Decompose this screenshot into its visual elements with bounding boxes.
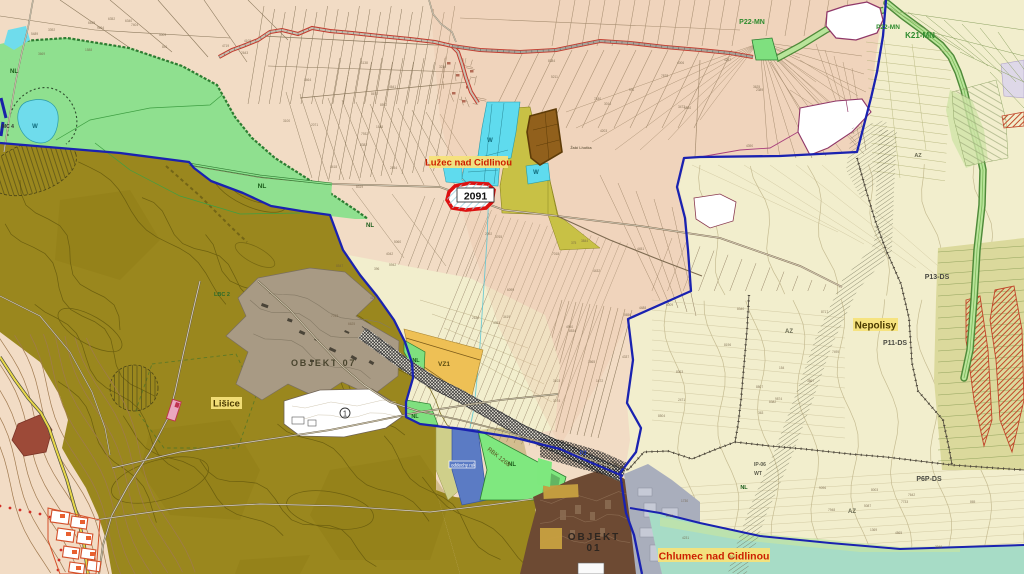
svg-text:W: W xyxy=(32,124,38,130)
svg-text:8592: 8592 xyxy=(380,103,387,107)
svg-text:1588: 1588 xyxy=(85,48,92,52)
svg-text:865: 865 xyxy=(970,500,976,504)
svg-text:3844: 3844 xyxy=(581,239,588,243)
svg-text:NL: NL xyxy=(258,183,267,190)
svg-text:7180: 7180 xyxy=(594,97,601,101)
svg-text:NL: NL xyxy=(10,69,18,75)
svg-text:841: 841 xyxy=(162,45,168,49)
svg-text:2091: 2091 xyxy=(464,191,488,203)
svg-text:154: 154 xyxy=(779,366,785,370)
svg-text:4203: 4203 xyxy=(600,129,607,133)
svg-text:991: 991 xyxy=(629,88,635,92)
svg-text:8003: 8003 xyxy=(871,488,878,492)
svg-text:6645: 6645 xyxy=(88,21,95,25)
svg-text:1838: 1838 xyxy=(376,125,383,129)
svg-text:4451: 4451 xyxy=(637,247,644,251)
svg-text:2630: 2630 xyxy=(472,316,479,320)
svg-text:NL: NL xyxy=(411,414,419,420)
svg-text:9874: 9874 xyxy=(775,397,782,401)
svg-text:5942: 5942 xyxy=(389,263,396,267)
svg-text:8196: 8196 xyxy=(724,343,731,347)
svg-text:6009: 6009 xyxy=(666,303,673,307)
svg-text:1730: 1730 xyxy=(681,499,688,503)
svg-text:8534: 8534 xyxy=(569,329,576,333)
svg-text:3074: 3074 xyxy=(553,399,560,403)
svg-text:9096: 9096 xyxy=(819,486,826,490)
svg-text:W: W xyxy=(533,170,539,176)
svg-text:5489: 5489 xyxy=(31,32,38,36)
svg-text:Lužec nad Cidlinou: Lužec nad Cidlinou xyxy=(425,158,512,169)
svg-text:4042: 4042 xyxy=(386,252,393,256)
svg-text:7948: 7948 xyxy=(828,508,835,512)
svg-text:4105: 4105 xyxy=(244,39,251,43)
svg-text:WT: WT xyxy=(754,471,762,477)
svg-text:5009: 5009 xyxy=(159,33,166,37)
svg-text:4865: 4865 xyxy=(895,531,902,535)
svg-text:AZ: AZ xyxy=(914,153,922,159)
svg-text:Nepolisy: Nepolisy xyxy=(855,321,897,332)
svg-text:5656: 5656 xyxy=(624,313,631,317)
svg-text:4006: 4006 xyxy=(677,61,684,65)
svg-text:8504: 8504 xyxy=(658,414,665,418)
svg-text:6540: 6540 xyxy=(684,106,691,110)
svg-text:P13-DS: P13-DS xyxy=(925,274,950,281)
svg-text:7733: 7733 xyxy=(901,500,908,504)
svg-text:P11-DS: P11-DS xyxy=(883,340,907,347)
svg-text:4337: 4337 xyxy=(622,355,629,359)
svg-text:3419: 3419 xyxy=(503,315,510,319)
svg-text:1138: 1138 xyxy=(361,61,368,65)
svg-text:5060: 5060 xyxy=(394,240,401,244)
svg-text:LBC 2: LBC 2 xyxy=(214,292,230,298)
svg-text:Žabí Lhotka: Žabí Lhotka xyxy=(570,145,592,150)
svg-text:8672: 8672 xyxy=(371,92,378,96)
svg-text:K21-MN: K21-MN xyxy=(905,31,935,40)
svg-text:4287: 4287 xyxy=(724,58,731,62)
svg-text:3946: 3946 xyxy=(935,545,942,549)
svg-text:8319: 8319 xyxy=(356,185,363,189)
svg-text:7878: 7878 xyxy=(661,74,668,78)
svg-text:8400: 8400 xyxy=(666,514,673,518)
svg-text:NL: NL xyxy=(366,223,374,229)
svg-text:8418: 8418 xyxy=(330,165,337,169)
svg-text:W: W xyxy=(487,138,493,144)
svg-text:3392: 3392 xyxy=(48,28,55,32)
svg-text:2389: 2389 xyxy=(756,88,763,92)
svg-text:6625: 6625 xyxy=(348,322,355,326)
svg-text:4641: 4641 xyxy=(389,85,396,89)
svg-text:7642: 7642 xyxy=(908,493,915,497)
svg-text:4353: 4353 xyxy=(493,321,500,325)
svg-text:8384: 8384 xyxy=(548,59,555,63)
svg-text:3234: 3234 xyxy=(439,65,446,69)
svg-text:MC 4: MC 4 xyxy=(2,124,14,130)
svg-text:3765: 3765 xyxy=(495,235,502,239)
svg-text:375: 375 xyxy=(571,241,577,245)
svg-text:2554: 2554 xyxy=(390,166,397,170)
svg-text:7495: 7495 xyxy=(832,350,839,354)
svg-text:6352: 6352 xyxy=(108,17,115,21)
svg-text:NL: NL xyxy=(740,485,748,491)
svg-text:5211: 5211 xyxy=(551,75,558,79)
svg-text:4488: 4488 xyxy=(639,306,646,310)
svg-text:5087: 5087 xyxy=(864,504,871,508)
svg-text:P6P-DS: P6P-DS xyxy=(916,476,942,483)
svg-text:7848: 7848 xyxy=(728,555,735,559)
svg-text:8807: 8807 xyxy=(756,385,763,389)
svg-text:VZ1: VZ1 xyxy=(438,361,450,368)
svg-text:6099: 6099 xyxy=(507,288,514,292)
svg-text:8464: 8464 xyxy=(304,78,311,82)
svg-text:2092: 2092 xyxy=(485,232,492,236)
svg-text:1565: 1565 xyxy=(588,360,595,364)
svg-text:8363: 8363 xyxy=(676,370,683,374)
svg-text:7932: 7932 xyxy=(361,132,368,136)
svg-text:8340: 8340 xyxy=(737,307,744,311)
svg-text:7018: 7018 xyxy=(552,252,559,256)
svg-text:NL: NL xyxy=(412,358,420,364)
svg-text:1472: 1472 xyxy=(596,379,603,383)
svg-text:Chlumec nad Cidlinou: Chlumec nad Cidlinou xyxy=(659,551,770,563)
svg-text:4432: 4432 xyxy=(593,269,600,273)
svg-text:4231: 4231 xyxy=(682,536,689,540)
svg-text:2643: 2643 xyxy=(241,51,248,55)
svg-text:P22-MN: P22-MN xyxy=(739,19,765,26)
svg-text:01: 01 xyxy=(586,543,601,554)
svg-text:1: 1 xyxy=(343,410,348,419)
svg-text:7404: 7404 xyxy=(131,23,138,27)
svg-text:AZ: AZ xyxy=(848,509,856,515)
svg-text:OBJEKT 07: OBJEKT 07 xyxy=(291,358,356,368)
svg-text:Lišice: Lišice xyxy=(213,399,240,410)
svg-text:1369: 1369 xyxy=(870,528,877,532)
svg-text:396: 396 xyxy=(374,267,380,271)
svg-text:8547: 8547 xyxy=(336,264,343,268)
svg-text:3669: 3669 xyxy=(38,52,45,56)
svg-text:2071: 2071 xyxy=(311,123,318,127)
svg-text:oddechy ruk: oddechy ruk xyxy=(451,463,476,468)
svg-text:AZ: AZ xyxy=(785,329,793,335)
svg-text:3014: 3014 xyxy=(604,102,611,106)
svg-text:419: 419 xyxy=(370,296,376,300)
svg-text:OBJEKT: OBJEKT xyxy=(568,532,621,543)
svg-text:4390: 4390 xyxy=(746,144,753,148)
svg-text:8717: 8717 xyxy=(821,310,828,314)
svg-text:8382: 8382 xyxy=(769,400,776,404)
svg-text:7763: 7763 xyxy=(331,314,338,318)
svg-text:IP-06: IP-06 xyxy=(754,462,766,468)
svg-text:3103: 3103 xyxy=(553,379,560,383)
svg-text:2471: 2471 xyxy=(678,398,685,402)
svg-text:9694: 9694 xyxy=(97,26,104,30)
svg-text:4719: 4719 xyxy=(222,44,229,48)
svg-text:363: 363 xyxy=(758,411,764,415)
svg-text:8382: 8382 xyxy=(360,143,367,147)
svg-text:3100: 3100 xyxy=(283,119,290,123)
svg-text:3867: 3867 xyxy=(807,379,814,383)
svg-text:P22-MN: P22-MN xyxy=(876,24,900,31)
svg-text:P2: P2 xyxy=(579,451,587,457)
